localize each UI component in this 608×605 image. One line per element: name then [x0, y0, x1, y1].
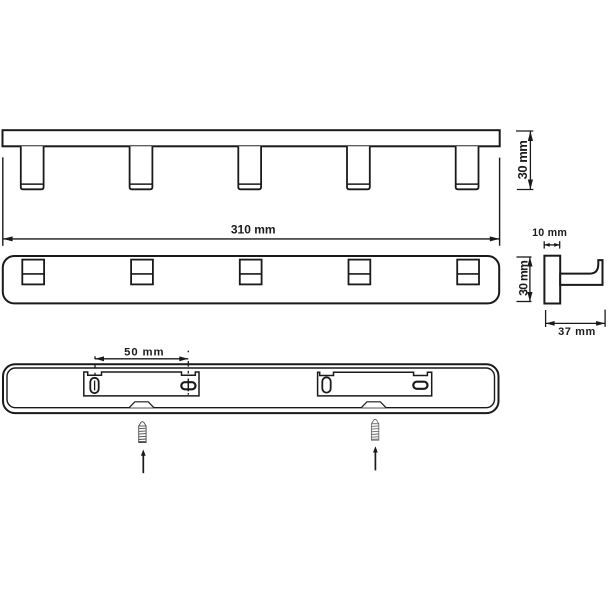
- svg-text:30 mm: 30 mm: [516, 260, 530, 296]
- svg-text:50 mm: 50 mm: [124, 346, 164, 358]
- svg-text:10 mm: 10 mm: [532, 227, 567, 239]
- svg-text:30 mm: 30 mm: [515, 141, 530, 180]
- svg-text:37 mm: 37 mm: [558, 326, 596, 338]
- svg-text:310 mm: 310 mm: [231, 222, 276, 236]
